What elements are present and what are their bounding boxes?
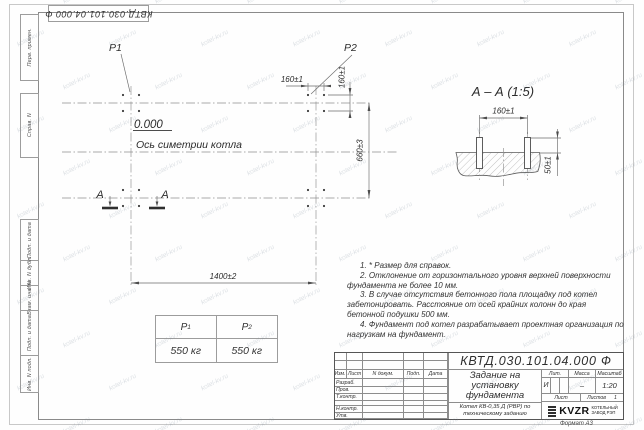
sidebar-label: Перв. примен. [27,28,33,66]
load-table-value-p2: 550 кг [217,339,278,362]
sheet-overlays: КВТД.030.101.04.000 Ф Перв. примен. Спра… [0,0,644,430]
tb-scale-value: 1:20 [595,377,624,394]
tb-mass-value: – [568,377,596,394]
kvzr-caption-line2: ЗАВОД РЭП [591,410,615,415]
sidebar-cell-podp-data-1: Подп. и дата [20,219,39,261]
p1-sub: 1 [187,324,191,331]
format-label: Формат А3 [560,421,640,427]
sidebar-cell-inv-podl: Инв. N подл. [20,355,39,393]
load-table-value-p1: 550 кг [156,339,217,362]
tb-col-podp: Подп. [404,370,424,379]
title-block-doc-number: КВТД.030.101.04.000 Ф [448,352,624,370]
kvzr-logo-caption: КОТЕЛЬНЫЙ ЗАВОД РЭП [591,406,617,415]
tb-row-razrab: Разраб. [334,379,363,387]
sidebar-cell-perv-primen: Перв. примен. [20,14,39,81]
tb-col-izm: Изм. [334,370,347,379]
sidebar-label: Подп. и дата [27,315,33,351]
sidebar-label: Подп. и дата [27,222,33,258]
tb-col-data: Дата [424,370,448,379]
tb-row-tkontr: Т.контр. [334,394,363,401]
technical-notes: 1. * Размер для справок. 2. Отклонение о… [347,261,625,339]
sidebar-label: Справ. N [27,113,33,137]
tb-lit-value: И [542,378,550,393]
drawing-sheet: 1400±2 660±3 160±1 [0,0,644,430]
tb-lit-value-cells: И [541,377,569,394]
load-table: Р1 Р2 550 кг 550 кг [155,315,278,363]
tb-sheets-value: 1 [614,395,617,401]
tb-col-list: Лист [347,370,363,379]
load-table-header-p2: Р2 [217,316,278,339]
title-block-revision-grid: Изм. Лист N докум. Подп. Дата Разраб. Пр… [334,352,448,420]
tb-col-dokum: N докум. [363,370,404,379]
tb-row-nkontr: Н.контр. [334,406,363,413]
sidebar-cell-vzam-inv: Взам. инв. N [20,285,39,311]
p2-sub: 2 [248,324,252,331]
note-line: 4. Фундамент под котел разрабатывает про… [347,320,625,340]
rotated-doc-number-box: КВТД.030.101.04.000 Ф [48,5,149,22]
load-table-header-p1: Р1 [156,316,217,339]
tb-sheets-label: Листов [587,395,606,401]
tb-logo-cell: KVZR КОТЕЛЬНЫЙ ЗАВОД РЭП [541,401,624,420]
rotated-doc-number: КВТД.030.101.04.000 Ф [45,9,153,19]
tb-row-utv: Утв. [334,413,363,419]
p1-base: Р [181,322,188,333]
kvzr-logo-text: KVZR [559,405,589,417]
tb-row-prov: Пров. [334,387,363,394]
note-line: 2. Отклонение от горизонтального уровня … [347,271,625,291]
note-line: 1. * Размер для справок. [347,261,625,271]
kvzr-coil-icon [547,405,557,417]
sidebar-cell-sprav-n: Справ. N [20,93,39,158]
sidebar-label: Инв. N подл. [27,357,33,391]
title-block-title: Задание на установку фундамента [448,369,542,403]
note-line: 3. В случае отсутствия бетонного пола пл… [347,290,625,319]
title-block-subtitle: Котел КВ-0,35 Д (РВР) по техническому за… [448,402,542,420]
sidebar-cell-podp-data-2: Подп. и дата [20,310,39,356]
